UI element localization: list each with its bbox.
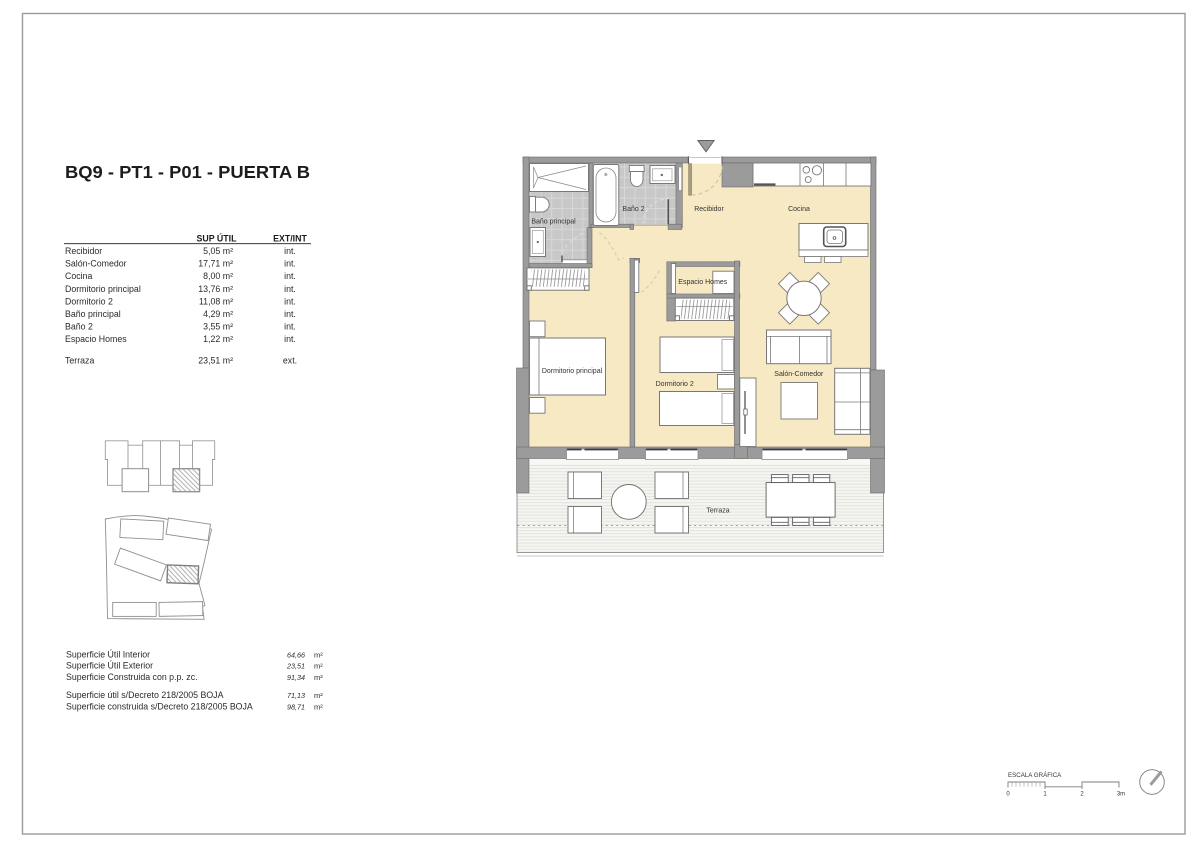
svg-text:Cocina: Cocina xyxy=(65,271,92,281)
svg-text:Recibidor: Recibidor xyxy=(694,206,724,213)
svg-text:1,22 m²: 1,22 m² xyxy=(203,334,233,344)
svg-text:Dormitorio principal: Dormitorio principal xyxy=(65,284,141,294)
svg-text:Recibidor: Recibidor xyxy=(65,246,102,256)
svg-text:Superficie Útil Interior: Superficie Útil Interior xyxy=(66,650,150,660)
svg-text:Dormitorio principal: Dormitorio principal xyxy=(542,368,603,375)
svg-text:11,08 m²: 11,08 m² xyxy=(199,296,233,306)
svg-text:int.: int. xyxy=(284,334,296,344)
svg-text:8,00 m²: 8,00 m² xyxy=(203,271,233,281)
svg-text:ESCALA GRÁFICA: ESCALA GRÁFICA xyxy=(1008,772,1062,779)
svg-text:Baño 2: Baño 2 xyxy=(65,321,93,331)
svg-text:4,29 m²: 4,29 m² xyxy=(203,309,233,319)
svg-text:int.: int. xyxy=(284,259,296,269)
svg-text:m²: m² xyxy=(314,673,323,682)
svg-text:3m: 3m xyxy=(1117,792,1125,798)
svg-text:SUP ÚTIL: SUP ÚTIL xyxy=(197,233,238,244)
svg-text:int.: int. xyxy=(284,284,296,294)
svg-text:Espacio Homes: Espacio Homes xyxy=(65,334,127,344)
svg-text:Espacio Homes: Espacio Homes xyxy=(678,279,728,286)
svg-text:64,66: 64,66 xyxy=(287,651,305,660)
svg-text:5,05 m²: 5,05 m² xyxy=(203,246,233,256)
svg-text:Terraza: Terraza xyxy=(706,507,729,514)
svg-text:Dormitorio 2: Dormitorio 2 xyxy=(65,296,113,306)
svg-text:Salón-Comedor: Salón-Comedor xyxy=(65,259,127,269)
svg-text:98,71: 98,71 xyxy=(287,702,305,711)
svg-text:71,13: 71,13 xyxy=(287,691,305,700)
svg-text:ext.: ext. xyxy=(283,355,297,365)
svg-text:m²: m² xyxy=(314,702,323,711)
svg-text:Baño 2: Baño 2 xyxy=(622,206,644,213)
svg-text:17,71 m²: 17,71 m² xyxy=(198,259,233,269)
svg-text:m²: m² xyxy=(314,651,323,660)
svg-text:23,51: 23,51 xyxy=(286,662,305,671)
svg-text:Superficie útil s/Decreto 218/: Superficie útil s/Decreto 218/2005 BOJA xyxy=(66,690,224,700)
svg-text:BQ9 - PT1 - P01 - PUERTA B: BQ9 - PT1 - P01 - PUERTA B xyxy=(65,162,310,182)
svg-text:Dormitorio 2: Dormitorio 2 xyxy=(656,381,694,388)
svg-text:int.: int. xyxy=(284,271,296,281)
svg-text:Cocina: Cocina xyxy=(788,206,810,213)
svg-text:Superficie Construida con p.p.: Superficie Construida con p.p. zc. xyxy=(66,672,198,682)
svg-text:m²: m² xyxy=(314,662,323,671)
svg-text:23,51 m²: 23,51 m² xyxy=(198,355,233,365)
svg-text:EXT/INT: EXT/INT xyxy=(273,234,307,244)
svg-text:int.: int. xyxy=(284,296,296,306)
svg-text:int.: int. xyxy=(284,246,296,256)
svg-text:Terraza: Terraza xyxy=(65,355,94,365)
svg-text:m²: m² xyxy=(314,691,323,700)
svg-text:int.: int. xyxy=(284,321,296,331)
svg-text:Baño principal: Baño principal xyxy=(531,218,576,225)
svg-text:Baño principal: Baño principal xyxy=(65,309,121,319)
svg-text:int.: int. xyxy=(284,309,296,319)
svg-text:Superficie Útil Exterior: Superficie Útil Exterior xyxy=(66,661,153,671)
svg-text:91,34: 91,34 xyxy=(287,673,305,682)
svg-text:13,76 m²: 13,76 m² xyxy=(198,284,233,294)
svg-text:3,55 m²: 3,55 m² xyxy=(203,321,233,331)
svg-text:Superficie construida s/Decret: Superficie construida s/Decreto 218/2005… xyxy=(66,701,253,711)
svg-text:Salón-Comedor: Salón-Comedor xyxy=(774,371,824,378)
